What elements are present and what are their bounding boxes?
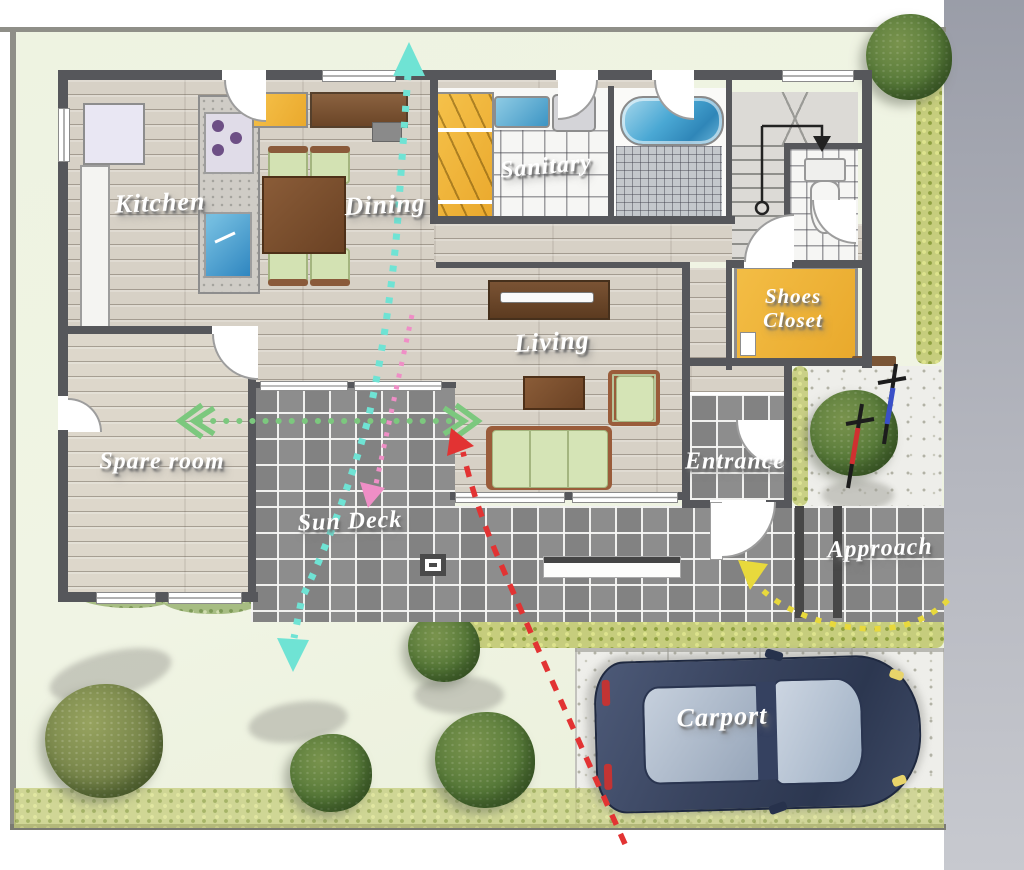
room-label-dining: Dining (344, 188, 427, 222)
flower-strip-entrance (792, 366, 808, 506)
car-taillight (602, 680, 611, 706)
wall (58, 70, 872, 80)
stove-burner (230, 132, 242, 144)
kitchen-side-counter (80, 165, 110, 334)
wall (430, 70, 438, 220)
car-taillight (604, 764, 613, 790)
bathroom-floor (616, 146, 722, 216)
deck-planter (420, 554, 446, 576)
washbasin (494, 96, 550, 128)
linen-closet (436, 92, 494, 218)
wall (682, 500, 712, 508)
wall (862, 70, 872, 368)
toilet-tank (804, 158, 846, 182)
wall (792, 260, 872, 268)
window-living-deck (260, 381, 348, 391)
counter-appliance (372, 122, 402, 142)
tree (408, 612, 480, 682)
room-label-approach: Approach (827, 534, 933, 565)
sofa-seat (492, 430, 608, 488)
refrigerator (83, 103, 145, 165)
wall (726, 70, 732, 220)
door-gap (212, 326, 258, 334)
terrace-step (543, 556, 681, 578)
room-label-living: Living (514, 325, 591, 359)
garden-stones (414, 676, 504, 714)
wall (58, 326, 216, 334)
stove-top (204, 112, 254, 174)
sun-deck-tiles (251, 386, 455, 506)
window-living-terrace (572, 492, 678, 503)
window (168, 592, 242, 604)
wall (784, 143, 866, 149)
window (96, 592, 156, 604)
car-front-glass (772, 677, 865, 785)
window (322, 70, 396, 82)
entrance-step-floor (690, 362, 786, 395)
room-label-spare-room: Spare room (99, 449, 224, 476)
floor-corridor (688, 268, 726, 362)
window (782, 70, 854, 82)
door-gap (556, 70, 598, 80)
site-fence-left (10, 27, 16, 828)
room-label-sun-deck: Sun Deck (297, 507, 403, 538)
hedge-right-side (916, 80, 942, 364)
room-label-kitchen: Kitchen (114, 186, 206, 219)
wall (682, 358, 872, 366)
tree (810, 390, 898, 476)
stairs-landing (732, 92, 858, 145)
tree (45, 684, 163, 798)
window-living-terrace (455, 492, 565, 503)
tree (866, 14, 952, 100)
kitchen-sink (204, 212, 252, 278)
armchair-cushion (616, 376, 654, 422)
door-gap (222, 70, 266, 80)
tree (290, 734, 372, 812)
room-label-carport: Carport (676, 700, 768, 733)
room-label-shoes-closet: Shoes Closet (747, 284, 839, 332)
wall (726, 262, 732, 370)
room-label-entrance: Entrance (685, 449, 785, 476)
floor-plan-scene: Kitchen Dining Sanitary Shoes Closet Liv… (0, 0, 1024, 870)
wall (436, 262, 682, 268)
shoes-closet-box (740, 332, 756, 356)
approach-post (795, 506, 804, 618)
door-gap (58, 396, 68, 430)
wall (726, 260, 744, 268)
stove-burner (212, 120, 224, 132)
tv (500, 292, 594, 303)
door-gap (652, 70, 694, 80)
site-fence-top (0, 27, 946, 32)
stove-burner (212, 144, 224, 156)
wall (430, 216, 735, 224)
approach-tiles (792, 506, 944, 622)
tree (435, 712, 535, 808)
car (593, 654, 919, 810)
coffee-table (523, 376, 585, 410)
wall (784, 366, 792, 508)
wall (608, 86, 614, 220)
photo-margin-right (944, 0, 1024, 870)
window (58, 108, 70, 162)
window-living-deck (354, 381, 442, 391)
dining-table (262, 176, 346, 254)
car-rear-glass (642, 684, 767, 785)
